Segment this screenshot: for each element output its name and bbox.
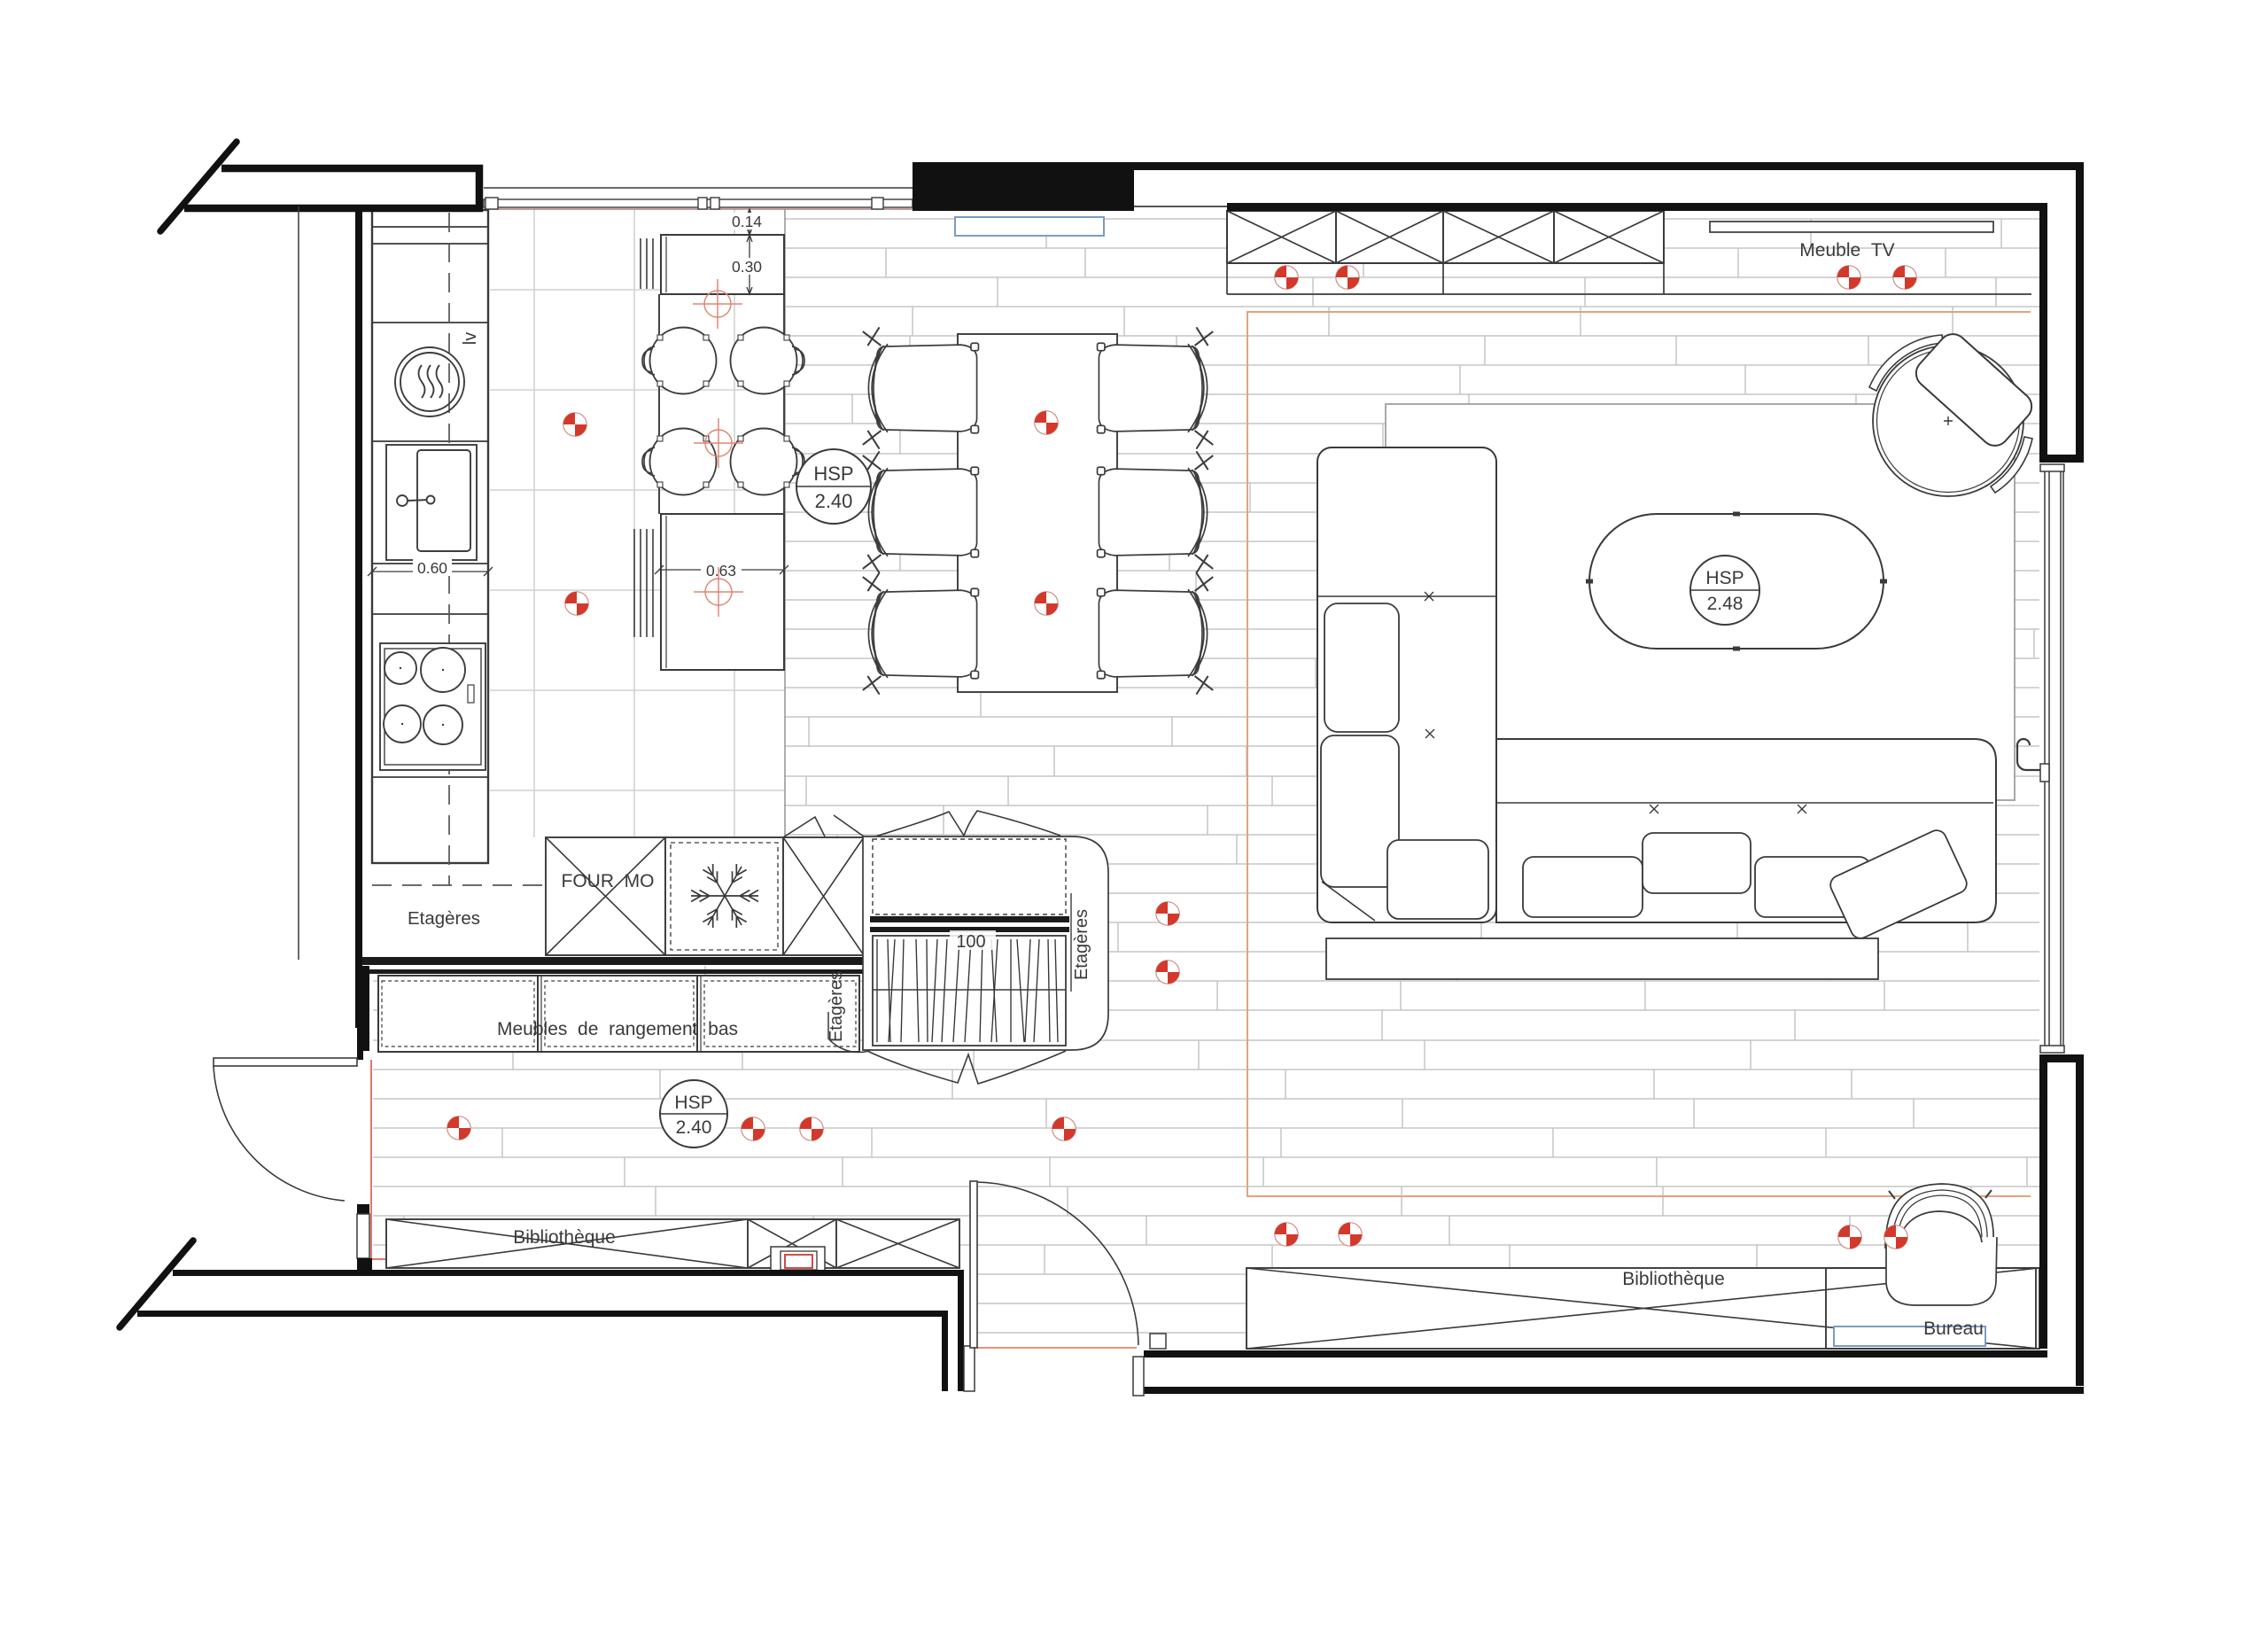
svg-text:Etagères: Etagères: [827, 971, 846, 1042]
svg-text:Etagères: Etagères: [1072, 909, 1091, 980]
svg-text:0.63: 0.63: [706, 562, 736, 580]
svg-text:2.40: 2.40: [676, 1117, 712, 1138]
svg-text:Bureau: Bureau: [1923, 1319, 1984, 1339]
svg-text:HSP: HSP: [674, 1093, 712, 1113]
svg-text:2.48: 2.48: [1707, 594, 1744, 614]
svg-text:Etagères: Etagères: [408, 908, 480, 929]
svg-text:HSP: HSP: [1705, 568, 1744, 588]
svg-text:Bibliothèque: Bibliothèque: [513, 1227, 616, 1248]
svg-text:2.40: 2.40: [815, 490, 853, 512]
svg-text:Meuble TV: Meuble TV: [1799, 240, 1894, 261]
svg-text:lv: lv: [461, 332, 480, 345]
svg-text:0.60: 0.60: [417, 559, 447, 577]
svg-text:0.14: 0.14: [732, 213, 762, 230]
svg-text:100: 100: [956, 932, 985, 952]
svg-text:0.30: 0.30: [732, 258, 762, 276]
svg-text:HSP: HSP: [813, 463, 853, 485]
svg-text:Bibliothèque: Bibliothèque: [1622, 1269, 1725, 1289]
svg-text:FOUR MO: FOUR MO: [562, 871, 655, 891]
svg-text:Meubles de rangement bas: Meubles de rangement bas: [497, 1019, 738, 1039]
